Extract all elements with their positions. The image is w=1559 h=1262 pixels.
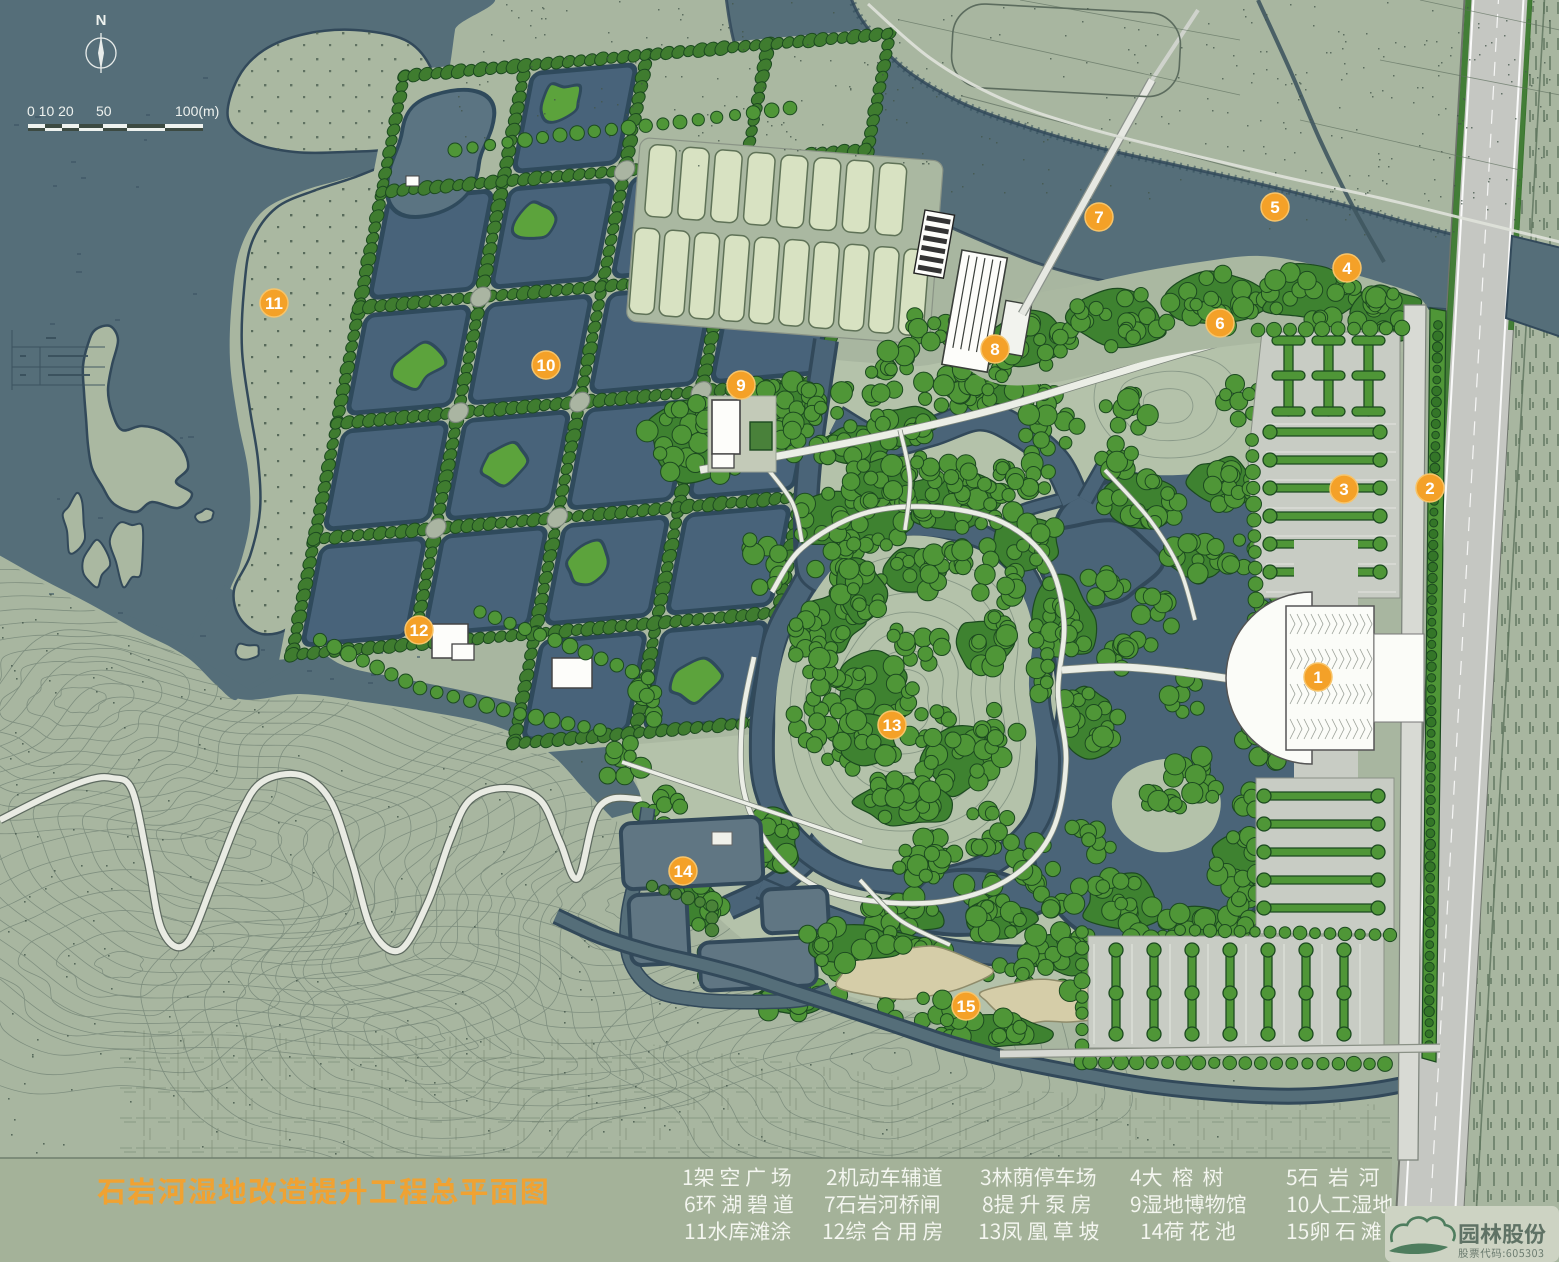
svg-text:0 10 20: 0 10 20 [27, 103, 74, 119]
svg-text:100(m): 100(m) [175, 103, 219, 119]
svg-text:11: 11 [265, 294, 283, 313]
svg-text:10: 10 [537, 356, 556, 375]
svg-text:50: 50 [96, 103, 112, 119]
svg-text:3: 3 [1339, 480, 1348, 499]
svg-text:14: 14 [674, 862, 693, 881]
svg-text:4: 4 [1342, 259, 1352, 278]
svg-text:12: 12 [410, 621, 429, 640]
svg-text:13: 13 [883, 716, 902, 735]
svg-text:2: 2 [1425, 479, 1434, 498]
svg-text:1: 1 [1313, 668, 1322, 687]
svg-text:8: 8 [990, 340, 999, 359]
svg-text:9: 9 [736, 376, 745, 395]
svg-text:15: 15 [957, 997, 976, 1016]
svg-text:N: N [96, 12, 107, 29]
svg-text:7: 7 [1094, 208, 1103, 227]
svg-text:5: 5 [1270, 198, 1279, 217]
svg-text:6: 6 [1215, 314, 1224, 333]
